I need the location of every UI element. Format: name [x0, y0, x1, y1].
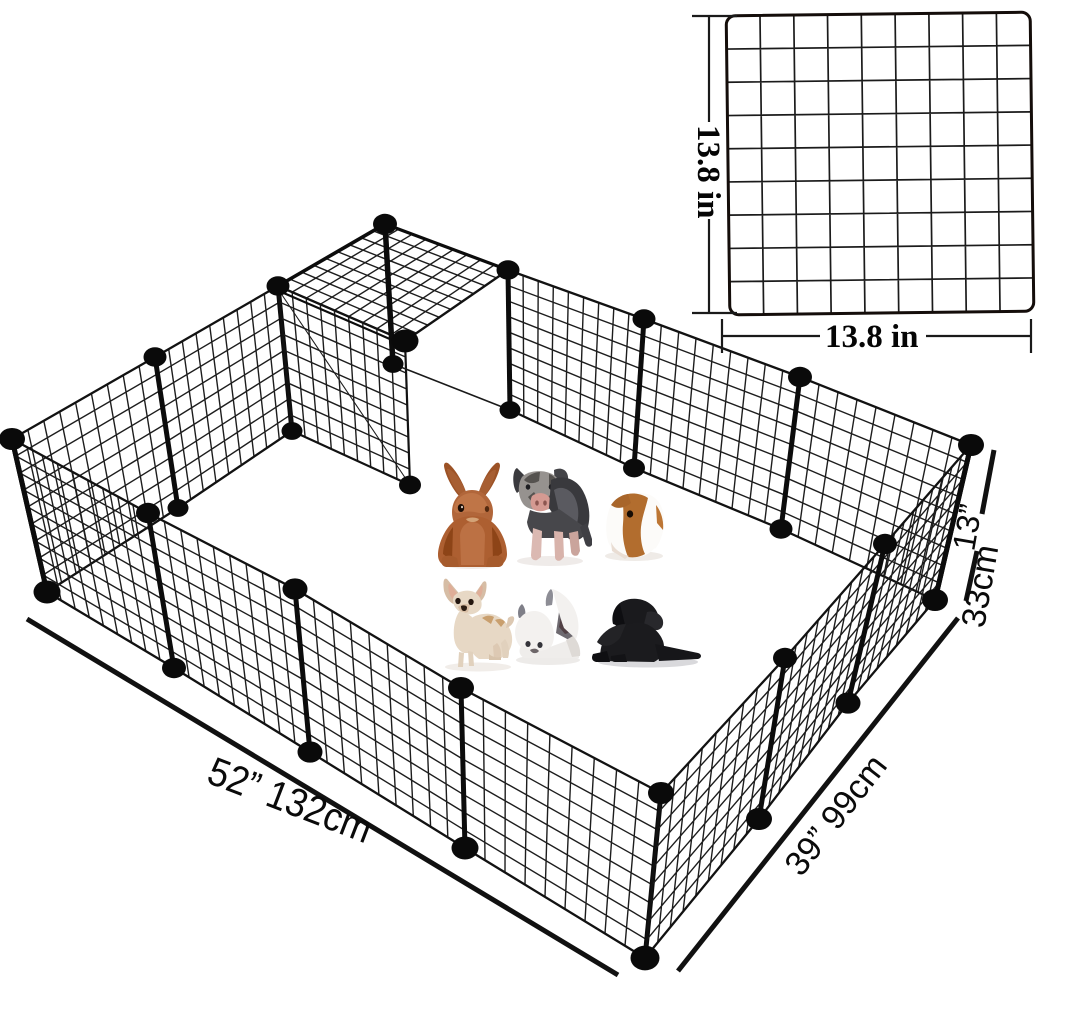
svg-text:52” 132cm: 52” 132cm [202, 749, 378, 852]
svg-text:33cm: 33cm [954, 542, 1006, 630]
svg-text:13.8 in: 13.8 in [690, 125, 726, 219]
svg-text:13.8 in: 13.8 in [825, 319, 919, 355]
